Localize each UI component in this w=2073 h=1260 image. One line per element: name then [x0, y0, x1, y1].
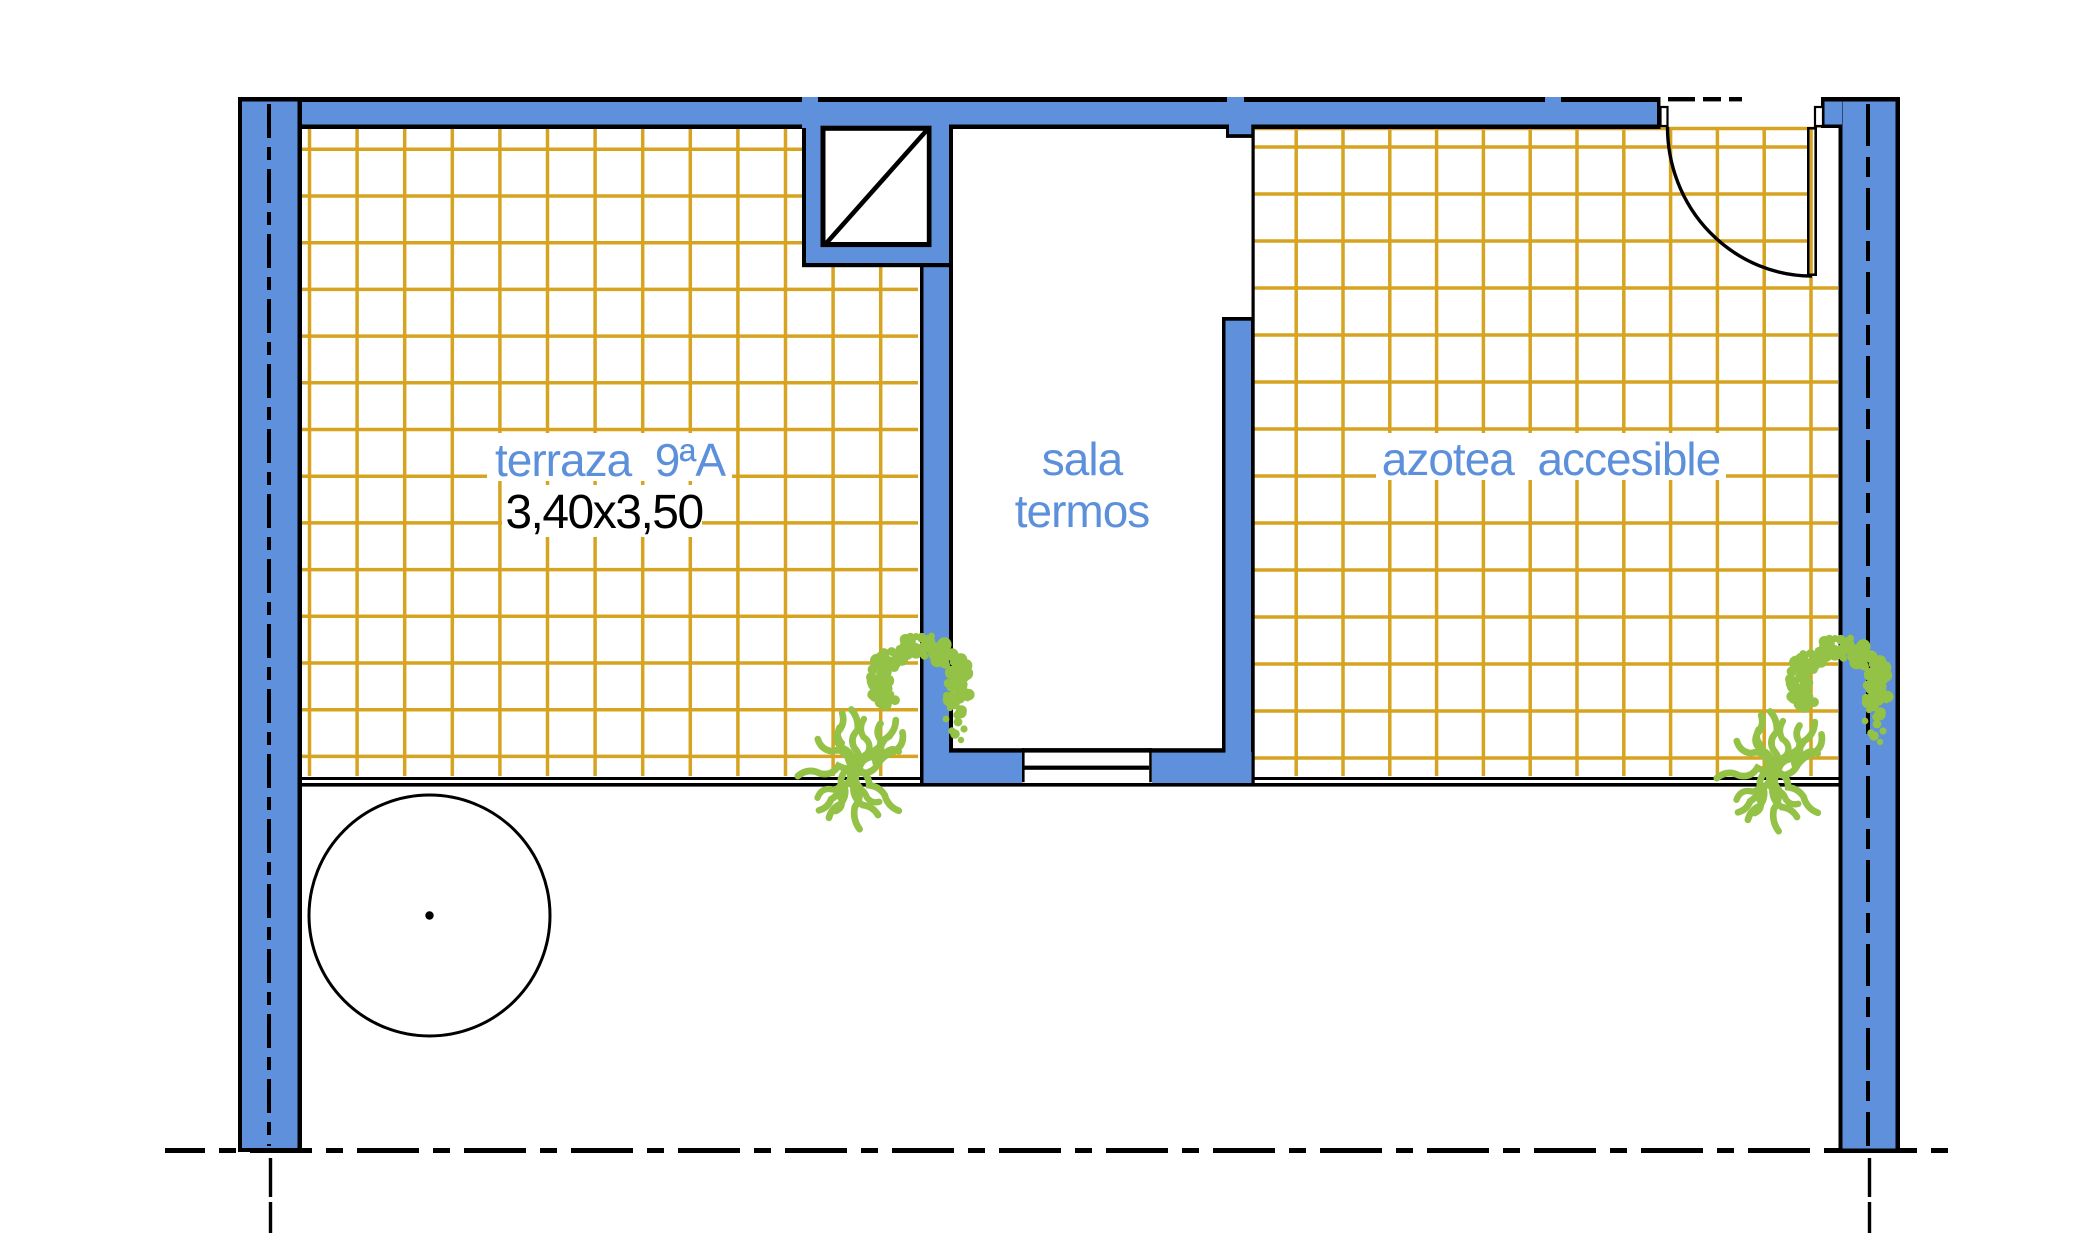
svg-text:termos: termos — [1015, 485, 1150, 537]
svg-text:azotea accesible: azotea accesible — [1382, 433, 1720, 485]
svg-text:terraza 9ªA: terraza 9ªA — [495, 434, 726, 486]
svg-text:3,40x3,50: 3,40x3,50 — [505, 486, 702, 539]
svg-text:sala: sala — [1042, 433, 1124, 485]
